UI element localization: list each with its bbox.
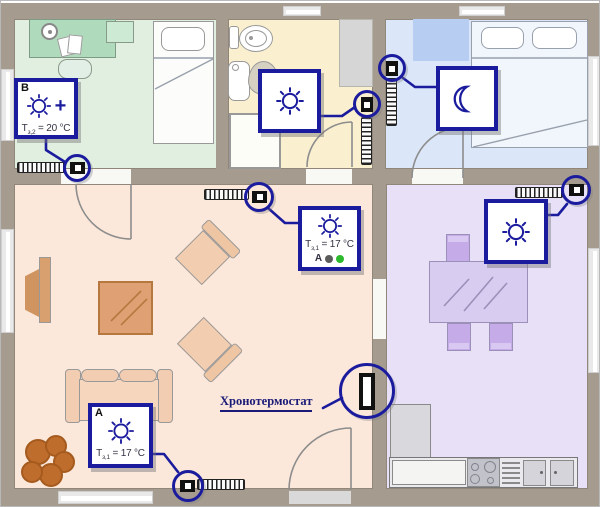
radiator [361, 117, 372, 165]
pillow [481, 27, 524, 49]
night-mode-label-box [436, 66, 498, 131]
sun-icon [317, 213, 343, 239]
living-top-label-box: Tз,1 = 17 °C A [298, 206, 361, 271]
window-bedroom-top [459, 6, 505, 16]
dining-label-box [484, 199, 548, 264]
radiator [204, 189, 249, 200]
bathroom-label-box [258, 69, 321, 133]
sun-icon [275, 86, 305, 116]
pillow [161, 27, 205, 51]
sofa-cushion [119, 369, 157, 382]
doorway-entrance [289, 491, 351, 504]
setpoint-text: Tз,1 = 17 °C [305, 239, 354, 252]
dining-chair-band [448, 236, 468, 242]
plant [39, 463, 63, 487]
mode-icon-row: + [26, 93, 67, 119]
setpoint-text: Tз,2 = 20 °C [22, 123, 71, 136]
stove-burner [484, 461, 496, 473]
radiator [197, 479, 245, 490]
zone-letter-a: A [315, 253, 322, 264]
doorway-bedroom-dining [412, 169, 463, 184]
dish-rack [502, 462, 520, 484]
stove-burner [470, 474, 480, 484]
window-bathroom-top [283, 6, 321, 16]
zone-a-label-box: A Tз,1 = 17 °C [88, 403, 153, 468]
dining-table [429, 261, 528, 323]
dining-chair-band [449, 343, 469, 349]
status-dot-green [336, 255, 344, 263]
window-bedroom-right [588, 56, 600, 146]
pillow [532, 27, 577, 49]
radiator [386, 78, 397, 126]
valve-icon [180, 480, 195, 492]
stove-burner [471, 463, 479, 471]
desk-chair [58, 59, 92, 79]
nightstand [106, 21, 134, 43]
doorway-living-dining [373, 279, 386, 339]
sofa-armrest [157, 369, 173, 423]
fridge [390, 404, 431, 459]
plant [21, 461, 43, 483]
moon-icon [450, 82, 484, 116]
plus-icon: + [55, 96, 67, 116]
valve-icon [252, 191, 267, 203]
apartment-floor-plan: Хронотермостат B + Tз,2 = 20 °C [0, 0, 600, 507]
window-study-left [1, 69, 14, 141]
window-dining-right [588, 248, 600, 373]
kitchen-counter [392, 460, 466, 485]
duct-niche [339, 19, 373, 87]
sun-icon [26, 93, 52, 119]
stove-burner [487, 477, 494, 484]
cabinet-handle [554, 471, 557, 474]
washer-knob [232, 64, 239, 71]
wardrobe [413, 19, 469, 61]
sofa-cushion [81, 369, 119, 382]
coffee-table [98, 281, 153, 335]
toilet-dot [249, 36, 253, 40]
valve-icon [70, 162, 85, 174]
radiator [17, 162, 65, 173]
doorway-bathroom [306, 169, 352, 184]
desk-lamp-dot [48, 30, 52, 34]
status-dot-gray [325, 255, 333, 263]
dining-chair-band [491, 343, 511, 349]
wall-study-bathroom [216, 19, 228, 169]
chronothermostat-device-icon [359, 373, 375, 410]
valve-icon [386, 61, 398, 76]
toilet-tank [229, 26, 239, 49]
chronothermostat-label: Хронотермостат [220, 394, 312, 412]
zone-b-label-box: B + Tз,2 = 20 °C [14, 78, 78, 139]
cabinet-handle [540, 471, 543, 474]
valve-icon [361, 97, 373, 112]
sun-icon [501, 217, 531, 247]
zone-letter-a: A [95, 407, 103, 420]
radiator [515, 187, 563, 198]
valve-icon [569, 184, 584, 196]
tv-body [25, 269, 39, 317]
sun-icon [107, 417, 135, 445]
window-living-bottom [58, 491, 153, 504]
setpoint-text: Tз,1 = 17 °C [96, 448, 145, 461]
papers [67, 34, 83, 54]
window-living-left [1, 229, 14, 333]
zone-status-row: A [315, 253, 344, 264]
tv-screen [39, 257, 51, 323]
zone-letter-b: B [21, 82, 29, 95]
